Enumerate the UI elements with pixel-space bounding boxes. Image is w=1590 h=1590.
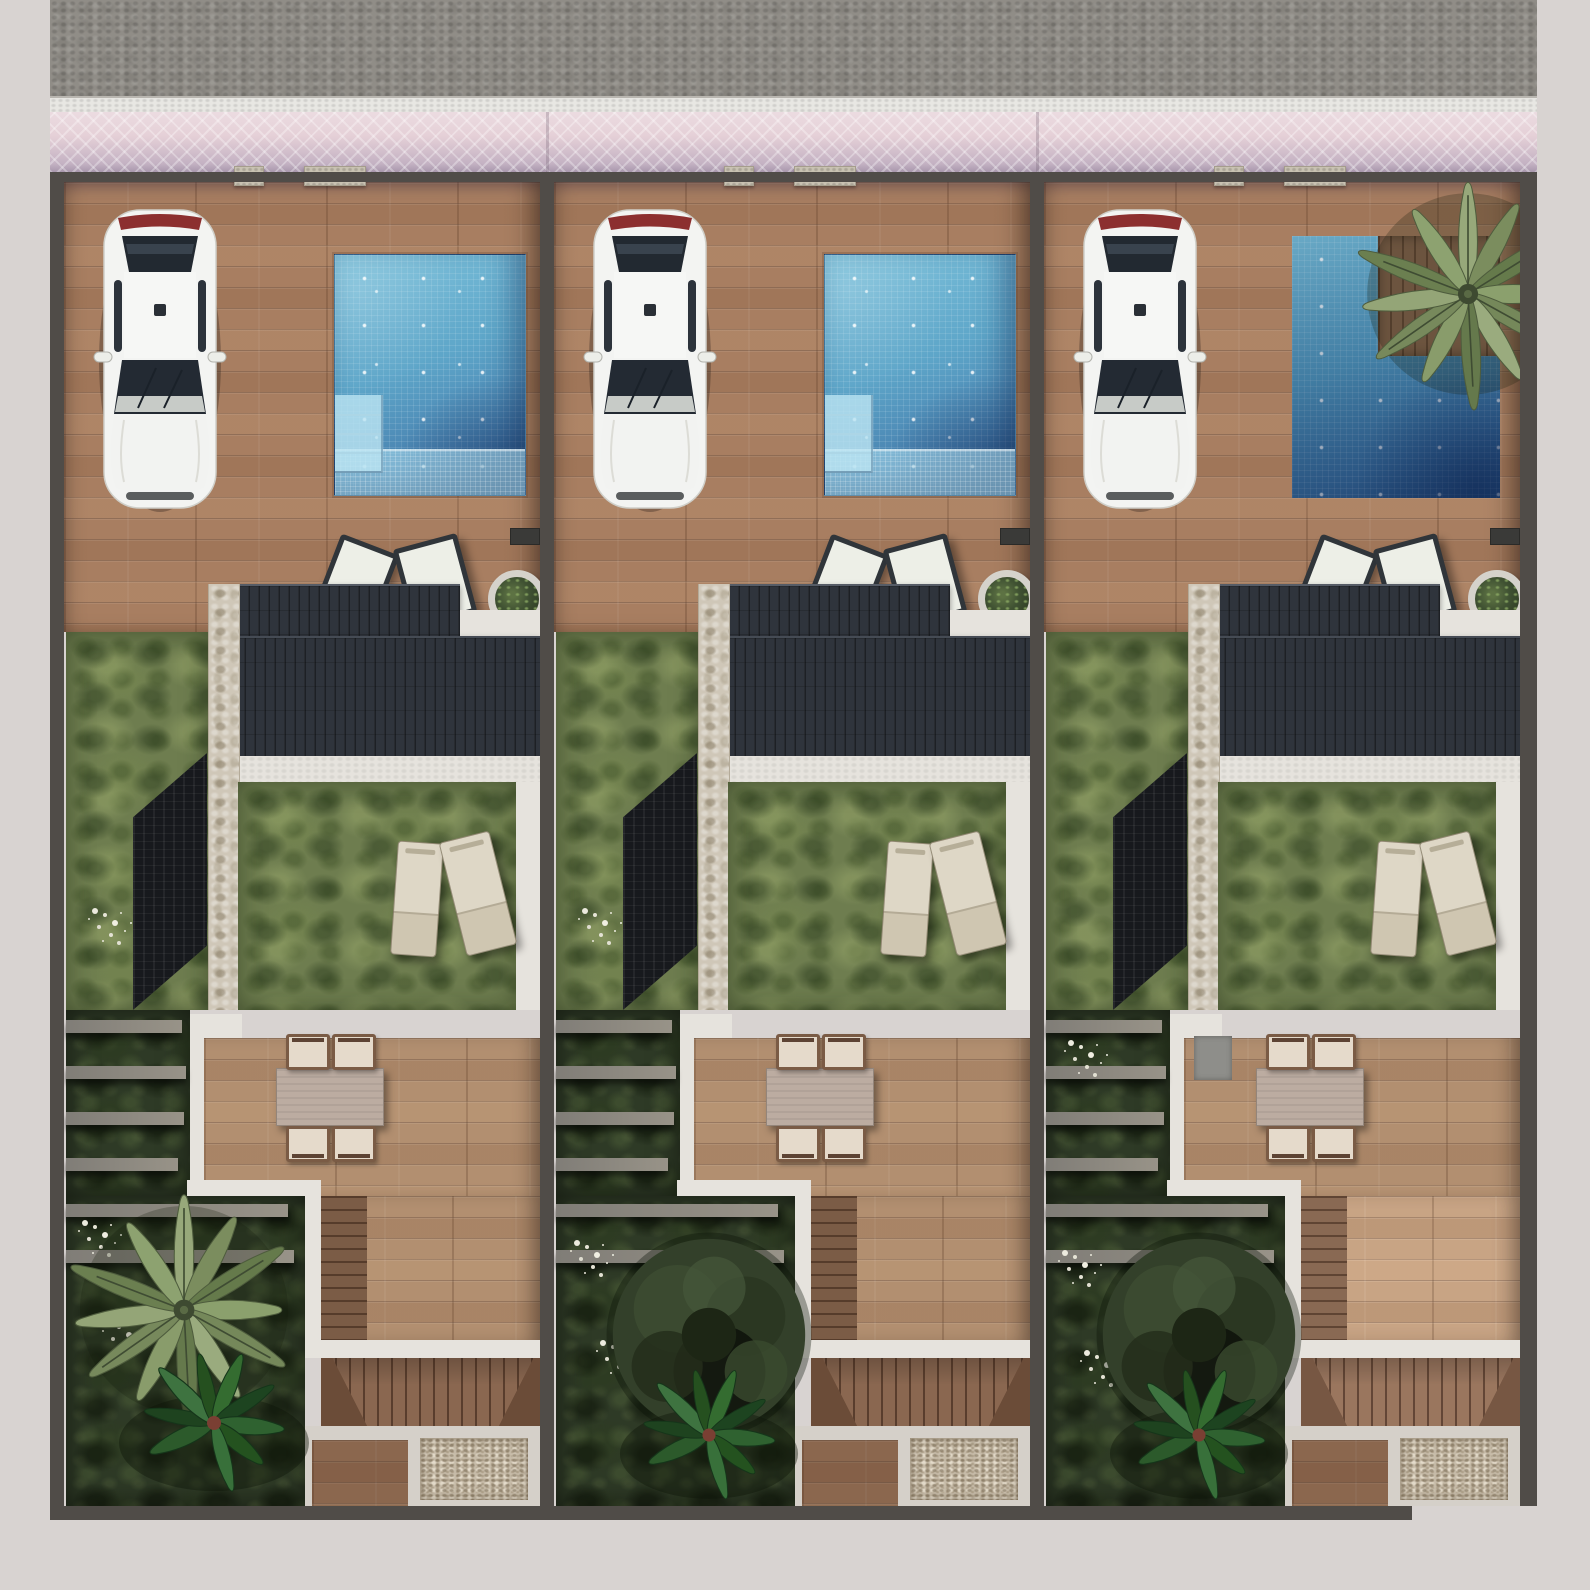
wall-utility-unit <box>1490 528 1520 545</box>
sun-lounger <box>390 841 444 958</box>
sidewalk-seam <box>1036 112 1039 172</box>
concrete-path <box>795 1340 1030 1358</box>
dining-chair <box>822 1034 866 1070</box>
concrete-path <box>1167 1180 1301 1196</box>
street-road <box>50 0 1540 96</box>
roof-lower-section <box>224 636 540 758</box>
swimming-pool <box>824 254 1016 496</box>
concrete-patch <box>460 610 540 636</box>
villa-plot-2 <box>554 180 1030 1506</box>
villa-plot-3 <box>1044 180 1520 1506</box>
entry-mat <box>1194 1036 1232 1080</box>
dining-chair <box>822 1126 866 1162</box>
flower-cluster <box>1062 1250 1068 1256</box>
swimming-pool <box>334 254 526 496</box>
gravel-pad <box>1400 1438 1508 1500</box>
roof-upper-section <box>228 584 460 638</box>
concrete-path <box>714 756 1030 782</box>
stair-landing <box>811 1196 857 1340</box>
stone-pebble-path <box>1188 584 1220 1010</box>
garden-step <box>556 1020 672 1033</box>
sun-lounger <box>880 841 934 958</box>
concrete-path <box>1285 1340 1520 1358</box>
garden-step <box>66 1250 294 1263</box>
dining-chair <box>286 1126 330 1162</box>
concrete-path <box>1006 782 1030 1010</box>
pool-step <box>825 414 873 435</box>
roof-upper-section <box>718 584 950 638</box>
garden-stairs <box>1301 1358 1520 1426</box>
garden-step <box>1046 1112 1164 1125</box>
parked-car <box>580 204 720 514</box>
stone-pebble-path <box>698 584 730 1010</box>
garden-step <box>66 1204 288 1217</box>
pool-step <box>825 433 873 454</box>
left-boundary-wall <box>50 172 64 1520</box>
rear-wood-pad <box>312 1440 408 1506</box>
garden-step <box>66 1112 184 1125</box>
concrete-path <box>677 1180 811 1196</box>
concrete-path <box>305 1196 321 1346</box>
wall-utility-unit <box>1000 528 1030 545</box>
flower-cluster <box>1068 1040 1074 1046</box>
garden-stairs <box>811 1358 1030 1426</box>
concrete-path <box>190 1038 204 1196</box>
garden-step <box>1046 1250 1274 1263</box>
dining-chair <box>286 1034 330 1070</box>
garden-step <box>66 1020 182 1033</box>
garden-step <box>556 1250 784 1263</box>
rear-garden <box>556 1196 795 1506</box>
garden-step <box>556 1066 676 1079</box>
villa-plot-1 <box>64 180 540 1506</box>
site-plan-render <box>0 0 1590 1590</box>
roof-lower-section <box>714 636 1030 758</box>
pool-step <box>335 395 383 416</box>
parked-car <box>90 204 230 514</box>
rear-wood-pad <box>1292 1440 1388 1506</box>
garden-step <box>66 1158 178 1171</box>
garden-step <box>66 1066 186 1079</box>
concrete-path <box>305 1340 540 1358</box>
dining-chair <box>1312 1126 1356 1162</box>
pool-step <box>335 452 383 473</box>
pool-step <box>825 452 873 473</box>
rear-wood-pad <box>802 1440 898 1506</box>
concrete-path <box>224 756 540 782</box>
party-wall <box>1030 172 1044 1506</box>
parked-car <box>1070 204 1210 514</box>
dining-chair <box>776 1126 820 1162</box>
pool-step <box>335 433 383 454</box>
sun-lounger <box>1370 841 1424 958</box>
concrete-path <box>187 1180 321 1196</box>
roof-lower-section <box>1204 636 1520 758</box>
gravel-pad <box>420 1438 528 1500</box>
pool-palm-deck <box>1378 236 1500 356</box>
concrete-path <box>516 782 540 1010</box>
concrete-path <box>1285 1196 1301 1346</box>
dining-table <box>766 1068 874 1126</box>
flower-cluster <box>1084 1350 1090 1356</box>
dining-chair <box>332 1126 376 1162</box>
flower-cluster <box>92 908 98 914</box>
surround-margin <box>1537 0 1590 1590</box>
stair-landing <box>1301 1196 1347 1340</box>
front-boundary-wall <box>50 172 1537 182</box>
pool-step <box>335 414 383 435</box>
dining-table <box>276 1068 384 1126</box>
rear-garden <box>66 1196 305 1506</box>
garden-step <box>556 1158 668 1171</box>
party-wall <box>540 172 554 1506</box>
rear-garden <box>1046 1196 1285 1506</box>
garden-step <box>556 1112 674 1125</box>
concrete-path <box>1204 756 1520 782</box>
dining-chair <box>1312 1034 1356 1070</box>
flower-cluster <box>106 1320 112 1326</box>
sidewalk-seam <box>546 112 549 172</box>
garden-step <box>1046 1020 1162 1033</box>
flower-cluster <box>582 908 588 914</box>
surround-margin <box>0 1520 1590 1590</box>
dining-table <box>1256 1068 1364 1126</box>
concrete-path <box>1170 1038 1184 1196</box>
stair-landing <box>321 1196 367 1340</box>
flower-cluster <box>600 1340 606 1346</box>
garden-step <box>1046 1158 1158 1171</box>
rear-boundary-wall <box>64 1506 1412 1520</box>
right-boundary-wall <box>1520 172 1537 1506</box>
concrete-path <box>795 1196 811 1346</box>
concrete-path <box>680 1038 694 1196</box>
garden-stairs <box>321 1358 540 1426</box>
flower-cluster <box>574 1240 580 1246</box>
stone-pebble-path <box>208 584 240 1010</box>
concrete-patch <box>950 610 1030 636</box>
wall-utility-unit <box>510 528 540 545</box>
pool-step <box>825 395 873 416</box>
flower-cluster <box>82 1220 88 1226</box>
dining-chair <box>776 1034 820 1070</box>
dining-chair <box>1266 1126 1310 1162</box>
surround-margin <box>0 0 50 1590</box>
dining-chair <box>1266 1034 1310 1070</box>
concrete-patch <box>1440 610 1520 636</box>
pink-sidewalk <box>50 112 1537 172</box>
concrete-path <box>1496 782 1520 1010</box>
roof-upper-section <box>1208 584 1440 638</box>
garden-step <box>1046 1204 1268 1217</box>
garden-step <box>1046 1066 1166 1079</box>
garden-step <box>556 1204 778 1217</box>
dining-chair <box>332 1034 376 1070</box>
gravel-pad <box>910 1438 1018 1500</box>
